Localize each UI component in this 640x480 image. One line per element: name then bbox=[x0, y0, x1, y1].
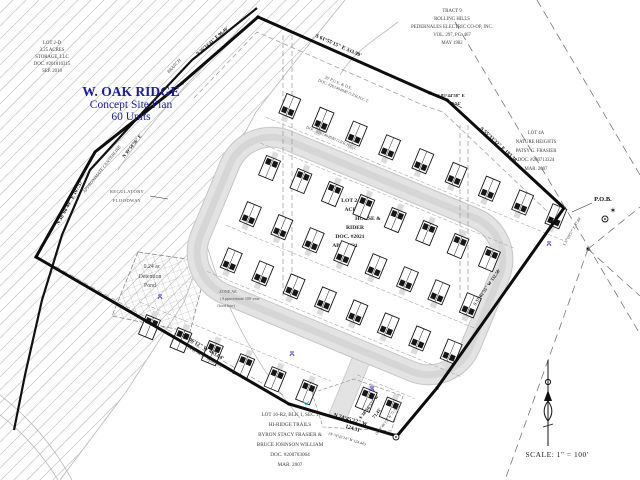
floodway-line: FLOODWAY bbox=[113, 198, 142, 203]
lot16r2-line: DOC. #200703064 bbox=[270, 452, 310, 458]
pond-line: 0.24 ac bbox=[144, 264, 161, 270]
lot4a-line: DOC. #200713324 bbox=[518, 158, 555, 163]
lot4a-line: NATURE HEIGHTS bbox=[516, 140, 557, 145]
plan-subtitle: Concept Site Plan bbox=[90, 99, 173, 111]
zone-line: (Approximate 100-year bbox=[220, 296, 260, 301]
pond-line: Detention bbox=[139, 274, 162, 280]
tract9-line: PEDERNALES ELECTRIC CO-OP, INC. bbox=[411, 25, 493, 30]
tract9-line: MAY 1982 bbox=[441, 41, 463, 46]
tract9-line: TRACT 9 bbox=[442, 9, 462, 14]
zone-line: ZONE AE bbox=[219, 289, 237, 294]
lot2e-line: DOC. #2021 bbox=[335, 234, 364, 240]
bearing-jog-len: 19.54' bbox=[449, 101, 461, 106]
monument-circle bbox=[393, 434, 399, 440]
zone-line: flood line) bbox=[217, 303, 235, 308]
pond-line: Pond bbox=[144, 283, 156, 289]
lot16r2-line: BRUCE JOHNSON WILLIAM bbox=[257, 442, 324, 448]
lot4a-line: MAR. 2007 bbox=[525, 167, 549, 172]
lot16r2-line: LOT 16-R2, BLK 1, SEC 1 bbox=[261, 412, 319, 418]
lot2e-line: RIDER bbox=[346, 225, 365, 231]
lot2d-line: DOC. #201810315 bbox=[34, 62, 71, 67]
lot16r2-line: MAR. 2007 bbox=[278, 462, 303, 468]
lot2d-line: SEP. 2018 bbox=[42, 69, 62, 74]
lot4a-line: PATSY G. FRASIER bbox=[516, 149, 558, 154]
plan-units: 60 Units bbox=[111, 111, 151, 123]
lot2d-line: STORAGE, LLC bbox=[35, 55, 69, 60]
plan-title: W. OAK RIDGE bbox=[82, 84, 179, 99]
scale-label: SCALE: 1" = 100' bbox=[525, 450, 588, 459]
lot2d-line: 3.25 ACRES bbox=[40, 48, 65, 53]
lot4a-line: LOT 4A bbox=[528, 131, 545, 136]
pob-label: P.O.B. bbox=[594, 196, 612, 203]
bearing-jog-dir: S 85°44'58" E bbox=[437, 93, 464, 98]
lot16r2-line: HI-RIDGE TRAILS bbox=[269, 422, 312, 428]
site-plan-canvas: LOT 2-E ACRES HORSE & RIDER DOC. #2021 A… bbox=[0, 0, 640, 480]
tract9-line: VOL. 297, PG. 467 bbox=[433, 33, 471, 38]
tract9-line: ROLLING HILLS bbox=[434, 17, 470, 22]
site-plan-drawing: LOT 2-E ACRES HORSE & RIDER DOC. #2021 A… bbox=[0, 0, 640, 480]
lot16r2-line: BYRON STACY FRASIER & bbox=[258, 432, 322, 438]
lot2d-line: LOT 2-D bbox=[43, 41, 61, 46]
floodway-line: REGULATORY bbox=[110, 189, 145, 194]
found-monument-star-icon: ✶ bbox=[610, 206, 617, 215]
